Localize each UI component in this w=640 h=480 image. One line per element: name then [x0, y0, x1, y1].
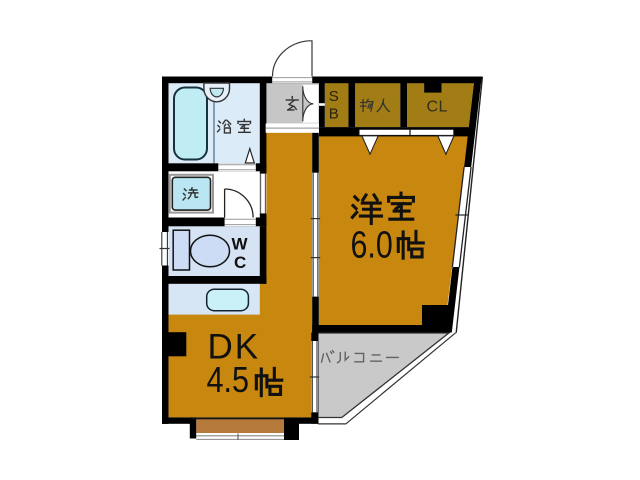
svg-text:C: C — [234, 253, 246, 272]
svg-text:B: B — [329, 106, 339, 123]
svg-text:S: S — [329, 88, 339, 105]
svg-text:6.0: 6.0 — [351, 224, 393, 266]
svg-text:4.5: 4.5 — [207, 361, 250, 401]
svg-text:W: W — [232, 235, 249, 254]
svg-text:CL: CL — [427, 99, 448, 116]
